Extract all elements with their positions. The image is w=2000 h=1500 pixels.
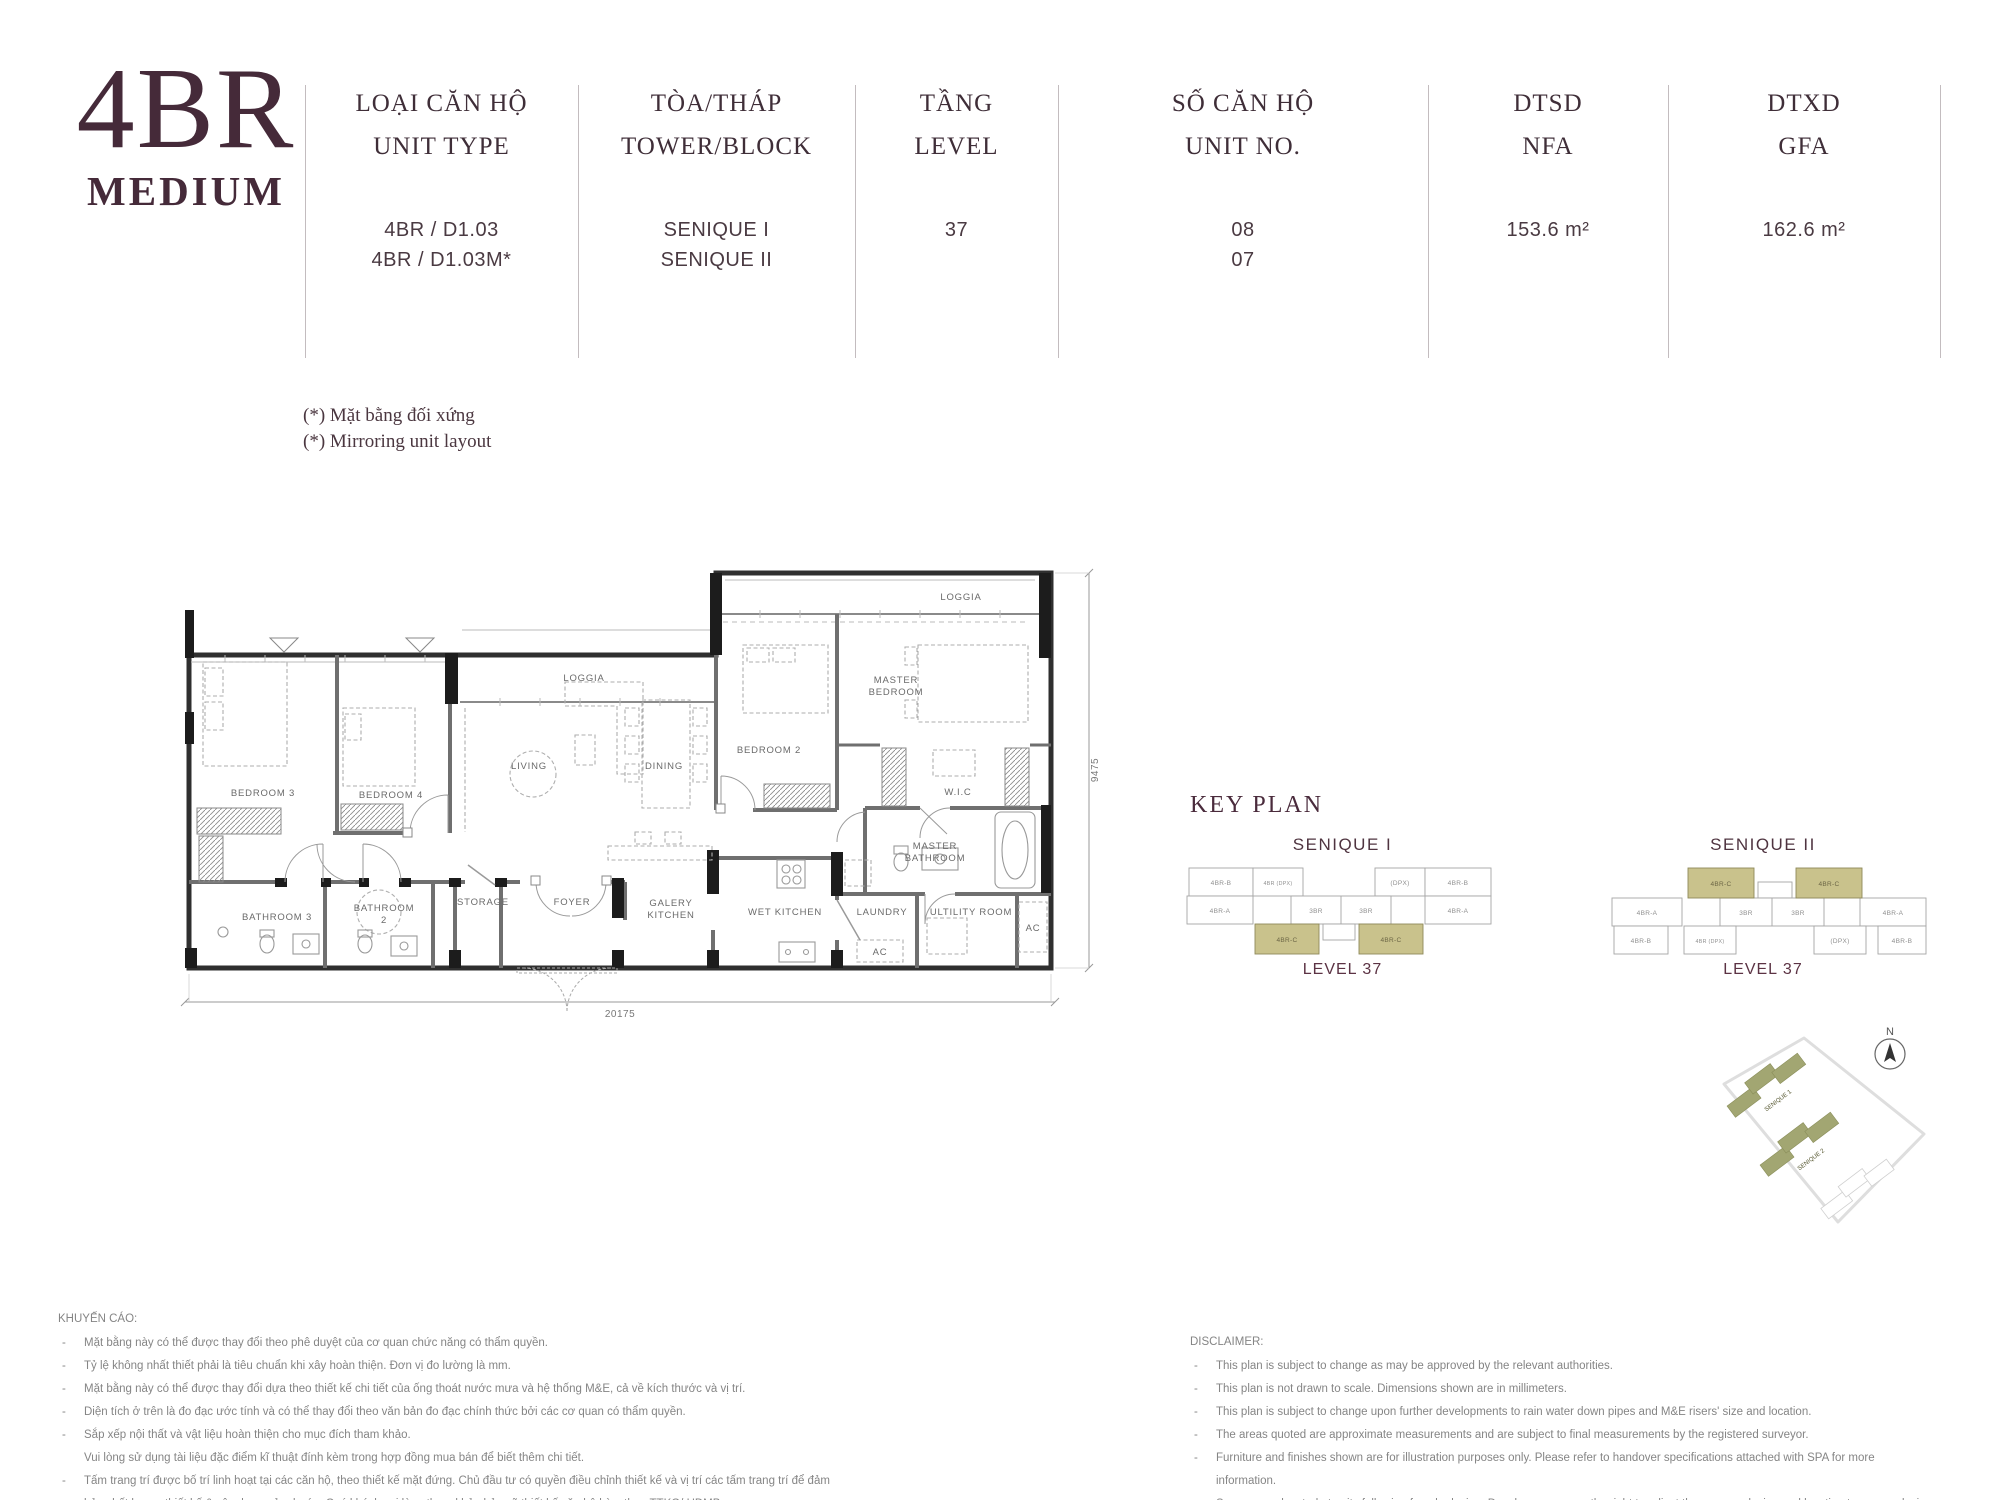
advisory-item: -Mặt bằng này có thể được thay đổi theo … <box>58 1332 848 1355</box>
window-rails <box>460 614 1049 702</box>
keyplan-unit-label: 4BR (DPX) <box>1264 881 1293 887</box>
unit-no-value: 07 <box>1058 245 1428 275</box>
disclaimer-item: -The areas quoted are approximate measur… <box>1190 1424 1935 1447</box>
disclaimer-block: DISCLAIMER: -This plan is subject to cha… <box>1190 1331 1935 1500</box>
col-label-en: GFA <box>1668 125 1940 168</box>
keyplan-heading: KEY PLAN <box>1190 792 1323 819</box>
north-compass-icon: N <box>1875 1026 1905 1069</box>
keyplan-unit-label: (DPX) <box>1830 938 1849 945</box>
col-label-vi: DTSD <box>1428 82 1668 125</box>
keyplan-unit-label: 4BR (DPX) <box>1696 939 1725 945</box>
header-col-unit-type: LOẠI CĂN HỘ UNIT TYPE 4BR / D1.03 4BR / … <box>305 82 578 275</box>
dimension-width: 20175 <box>605 1009 635 1020</box>
col-label-en: LEVEL <box>855 125 1058 168</box>
room-label-ac: AC <box>873 947 888 958</box>
col-label-vi: SỐ CĂN HỘ <box>1058 82 1428 125</box>
mirror-note-vi: (*) Mặt bằng đối xứng <box>303 403 491 429</box>
floor-plan: 20175 9475 LOGGIA LOGGIA MASTER BEDROOM … <box>165 550 1105 1030</box>
advisory-item: -Tấm trang trí được bố trí linh hoạt tại… <box>58 1470 848 1500</box>
room-label-galery-kitchen: KITCHEN <box>647 910 694 921</box>
disclaimer-heading: DISCLAIMER: <box>1190 1331 1935 1354</box>
room-label-ac: AC <box>1026 923 1041 934</box>
brochure-page: 4BR MEDIUM LOẠI CĂN HỘ UNIT TYPE 4BR / D… <box>0 0 2000 1500</box>
room-label-wet-kitchen: WET KITCHEN <box>748 907 822 918</box>
disclaimer-item: -Furniture and finishes shown are for il… <box>1190 1447 1935 1493</box>
col-label-en: NFA <box>1428 125 1668 168</box>
advisory-heading: KHUYẾN CÁO: <box>58 1308 848 1331</box>
room-label-galery-kitchen: GALERY <box>649 898 692 909</box>
room-label-loggia-mid: LOGGIA <box>563 673 604 684</box>
keyplan-unit-label: 4BR-B <box>1892 938 1913 945</box>
site-plan: SENIQUE 1 SENIQUE 2 N <box>1712 1022 1952 1237</box>
keyplan-senique1: 4BR-B 4BR (DPX) (DPX) 4BR-B 4BR-A 3BR 3B… <box>1185 866 1500 962</box>
room-label-bedroom2: BEDROOM 2 <box>737 745 801 756</box>
header-col-nfa: DTSD NFA 153.6 m² <box>1428 82 1668 245</box>
disclaimer-item: -This plan is subject to change upon fur… <box>1190 1401 1935 1424</box>
north-label: N <box>1886 1026 1894 1038</box>
wall-columns <box>185 573 1051 968</box>
keyplan-unit-label: 3BR <box>1309 908 1323 915</box>
keyplan-unit-label: 3BR <box>1359 908 1373 915</box>
room-label-dining: DINING <box>645 761 683 772</box>
room-label-master-bathroom: MASTER <box>913 841 957 852</box>
room-label-storage: STORAGE <box>457 897 509 908</box>
keyplan-unit-label-highlight: 4BR-C <box>1710 881 1731 888</box>
col-label-vi: LOẠI CĂN HỘ <box>305 82 578 125</box>
keyplan-unit-label-highlight: 4BR-C <box>1380 937 1401 944</box>
unit-type-title: 4BR MEDIUM <box>66 50 306 212</box>
disclaimer-item: -This plan is not drawn to scale. Dimens… <box>1190 1378 1935 1401</box>
room-label-bedroom3: BEDROOM 3 <box>231 788 295 799</box>
room-label-bathroom2: BATHROOM <box>354 903 415 914</box>
room-label-bedroom4: BEDROOM 4 <box>359 790 423 801</box>
unit-type-value: 4BR / D1.03M* <box>305 245 578 275</box>
keyplan-unit-label: 4BR-A <box>1210 908 1231 915</box>
advisory-item: -Sắp xếp nội thất và vật liệu hoàn thiện… <box>58 1424 848 1447</box>
tower-value: SENIQUE II <box>578 245 855 275</box>
keyplan-unit-label: 4BR-B <box>1211 880 1232 887</box>
keyplan-unit-label: 4BR-B <box>1448 880 1469 887</box>
room-label-master-bedroom: BEDROOM <box>869 687 924 698</box>
col-label-vi: DTXD <box>1668 82 1940 125</box>
header-col-level: TẦNG LEVEL 37 <box>855 82 1058 245</box>
col-label-en: UNIT TYPE <box>305 125 578 168</box>
keyplan-senique1-level: LEVEL 37 <box>1185 961 1500 979</box>
advisory-block: KHUYẾN CÁO: -Mặt bằng này có thể được th… <box>58 1308 848 1500</box>
header-col-unit-no: SỐ CĂN HỘ UNIT NO. 08 07 <box>1058 82 1428 275</box>
page-title: 4BR <box>66 50 306 168</box>
keyplan-unit-label: 3BR <box>1791 910 1805 917</box>
room-label-master-bathroom: BATHROOM <box>905 853 966 864</box>
room-label-utility: ULTILITY ROOM <box>930 907 1012 918</box>
room-label-laundry: LAUNDRY <box>857 907 908 918</box>
room-label-master-bedroom: MASTER <box>874 675 918 686</box>
room-label-foyer: FOYER <box>554 897 591 908</box>
keyplan-unit-label: 3BR <box>1739 910 1753 917</box>
vent-triangle-icon <box>270 638 434 652</box>
disclaimer-item: -This plan is subject to change as may b… <box>1190 1355 1935 1378</box>
unit-no-value: 08 <box>1058 215 1428 245</box>
keyplan-unit-label-highlight: 4BR-C <box>1276 937 1297 944</box>
keyplan-unit-label: 4BR-A <box>1883 910 1904 917</box>
header-col-tower: TÒA/THÁP TOWER/BLOCK SENIQUE I SENIQUE I… <box>578 82 855 275</box>
keyplan-senique2-level: LEVEL 37 <box>1598 961 1928 979</box>
gfa-value: 162.6 m² <box>1668 215 1940 245</box>
room-label-living: LIVING <box>511 761 547 772</box>
mirror-note: (*) Mặt bằng đối xứng (*) Mirroring unit… <box>303 403 491 455</box>
dimension-height: 9475 <box>1090 758 1101 782</box>
header-divider <box>1940 85 1941 358</box>
advisory-item: Vui lòng sử dụng tài liệu đặc điểm kĩ th… <box>58 1447 848 1470</box>
level-value: 37 <box>855 215 1058 245</box>
col-label-vi: TẦNG <box>855 82 1058 125</box>
keyplan-senique2: 4BR-C 4BR-C 4BR-A 3BR 3BR 4BR-A 4BR-B 4B… <box>1598 866 1928 962</box>
col-label-vi: TÒA/THÁP <box>578 82 855 125</box>
room-label-loggia-right: LOGGIA <box>940 592 981 603</box>
tower-value: SENIQUE I <box>578 215 855 245</box>
keyplan-unit-label: 4BR-A <box>1448 908 1469 915</box>
keyplan-unit-label: (DPX) <box>1390 880 1409 887</box>
page-subtitle: MEDIUM <box>66 170 306 212</box>
advisory-item: -Tỷ lệ không nhất thiết phải là tiêu chu… <box>58 1355 848 1378</box>
keyplan-senique1-title: SENIQUE I <box>1185 835 1500 855</box>
col-label-en: TOWER/BLOCK <box>578 125 855 168</box>
disclaimer-item: -Screens are located at units following … <box>1190 1493 1935 1500</box>
header-col-gfa: DTXD GFA 162.6 m² <box>1668 82 1940 245</box>
col-label-en: UNIT NO. <box>1058 125 1428 168</box>
mirror-note-en: (*) Mirroring unit layout <box>303 429 491 455</box>
unit-type-value: 4BR / D1.03 <box>305 215 578 245</box>
entry-door <box>517 968 617 1012</box>
keyplan-senique2-title: SENIQUE II <box>1598 835 1928 855</box>
nfa-value: 153.6 m² <box>1428 215 1668 245</box>
keyplan-unit-label: 4BR-A <box>1637 910 1658 917</box>
keyplan-unit-label: 4BR-B <box>1631 938 1652 945</box>
room-label-wic: W.I.C <box>944 787 971 798</box>
advisory-item: -Mặt bằng này có thể được thay đổi dựa t… <box>58 1378 848 1401</box>
room-label-bathroom3: BATHROOM 3 <box>242 912 312 923</box>
room-label-bathroom2: 2 <box>381 915 387 926</box>
keyplan-unit-label-highlight: 4BR-C <box>1818 881 1839 888</box>
advisory-item: -Diện tích ở trên là đo đạc ước tính và … <box>58 1401 848 1424</box>
